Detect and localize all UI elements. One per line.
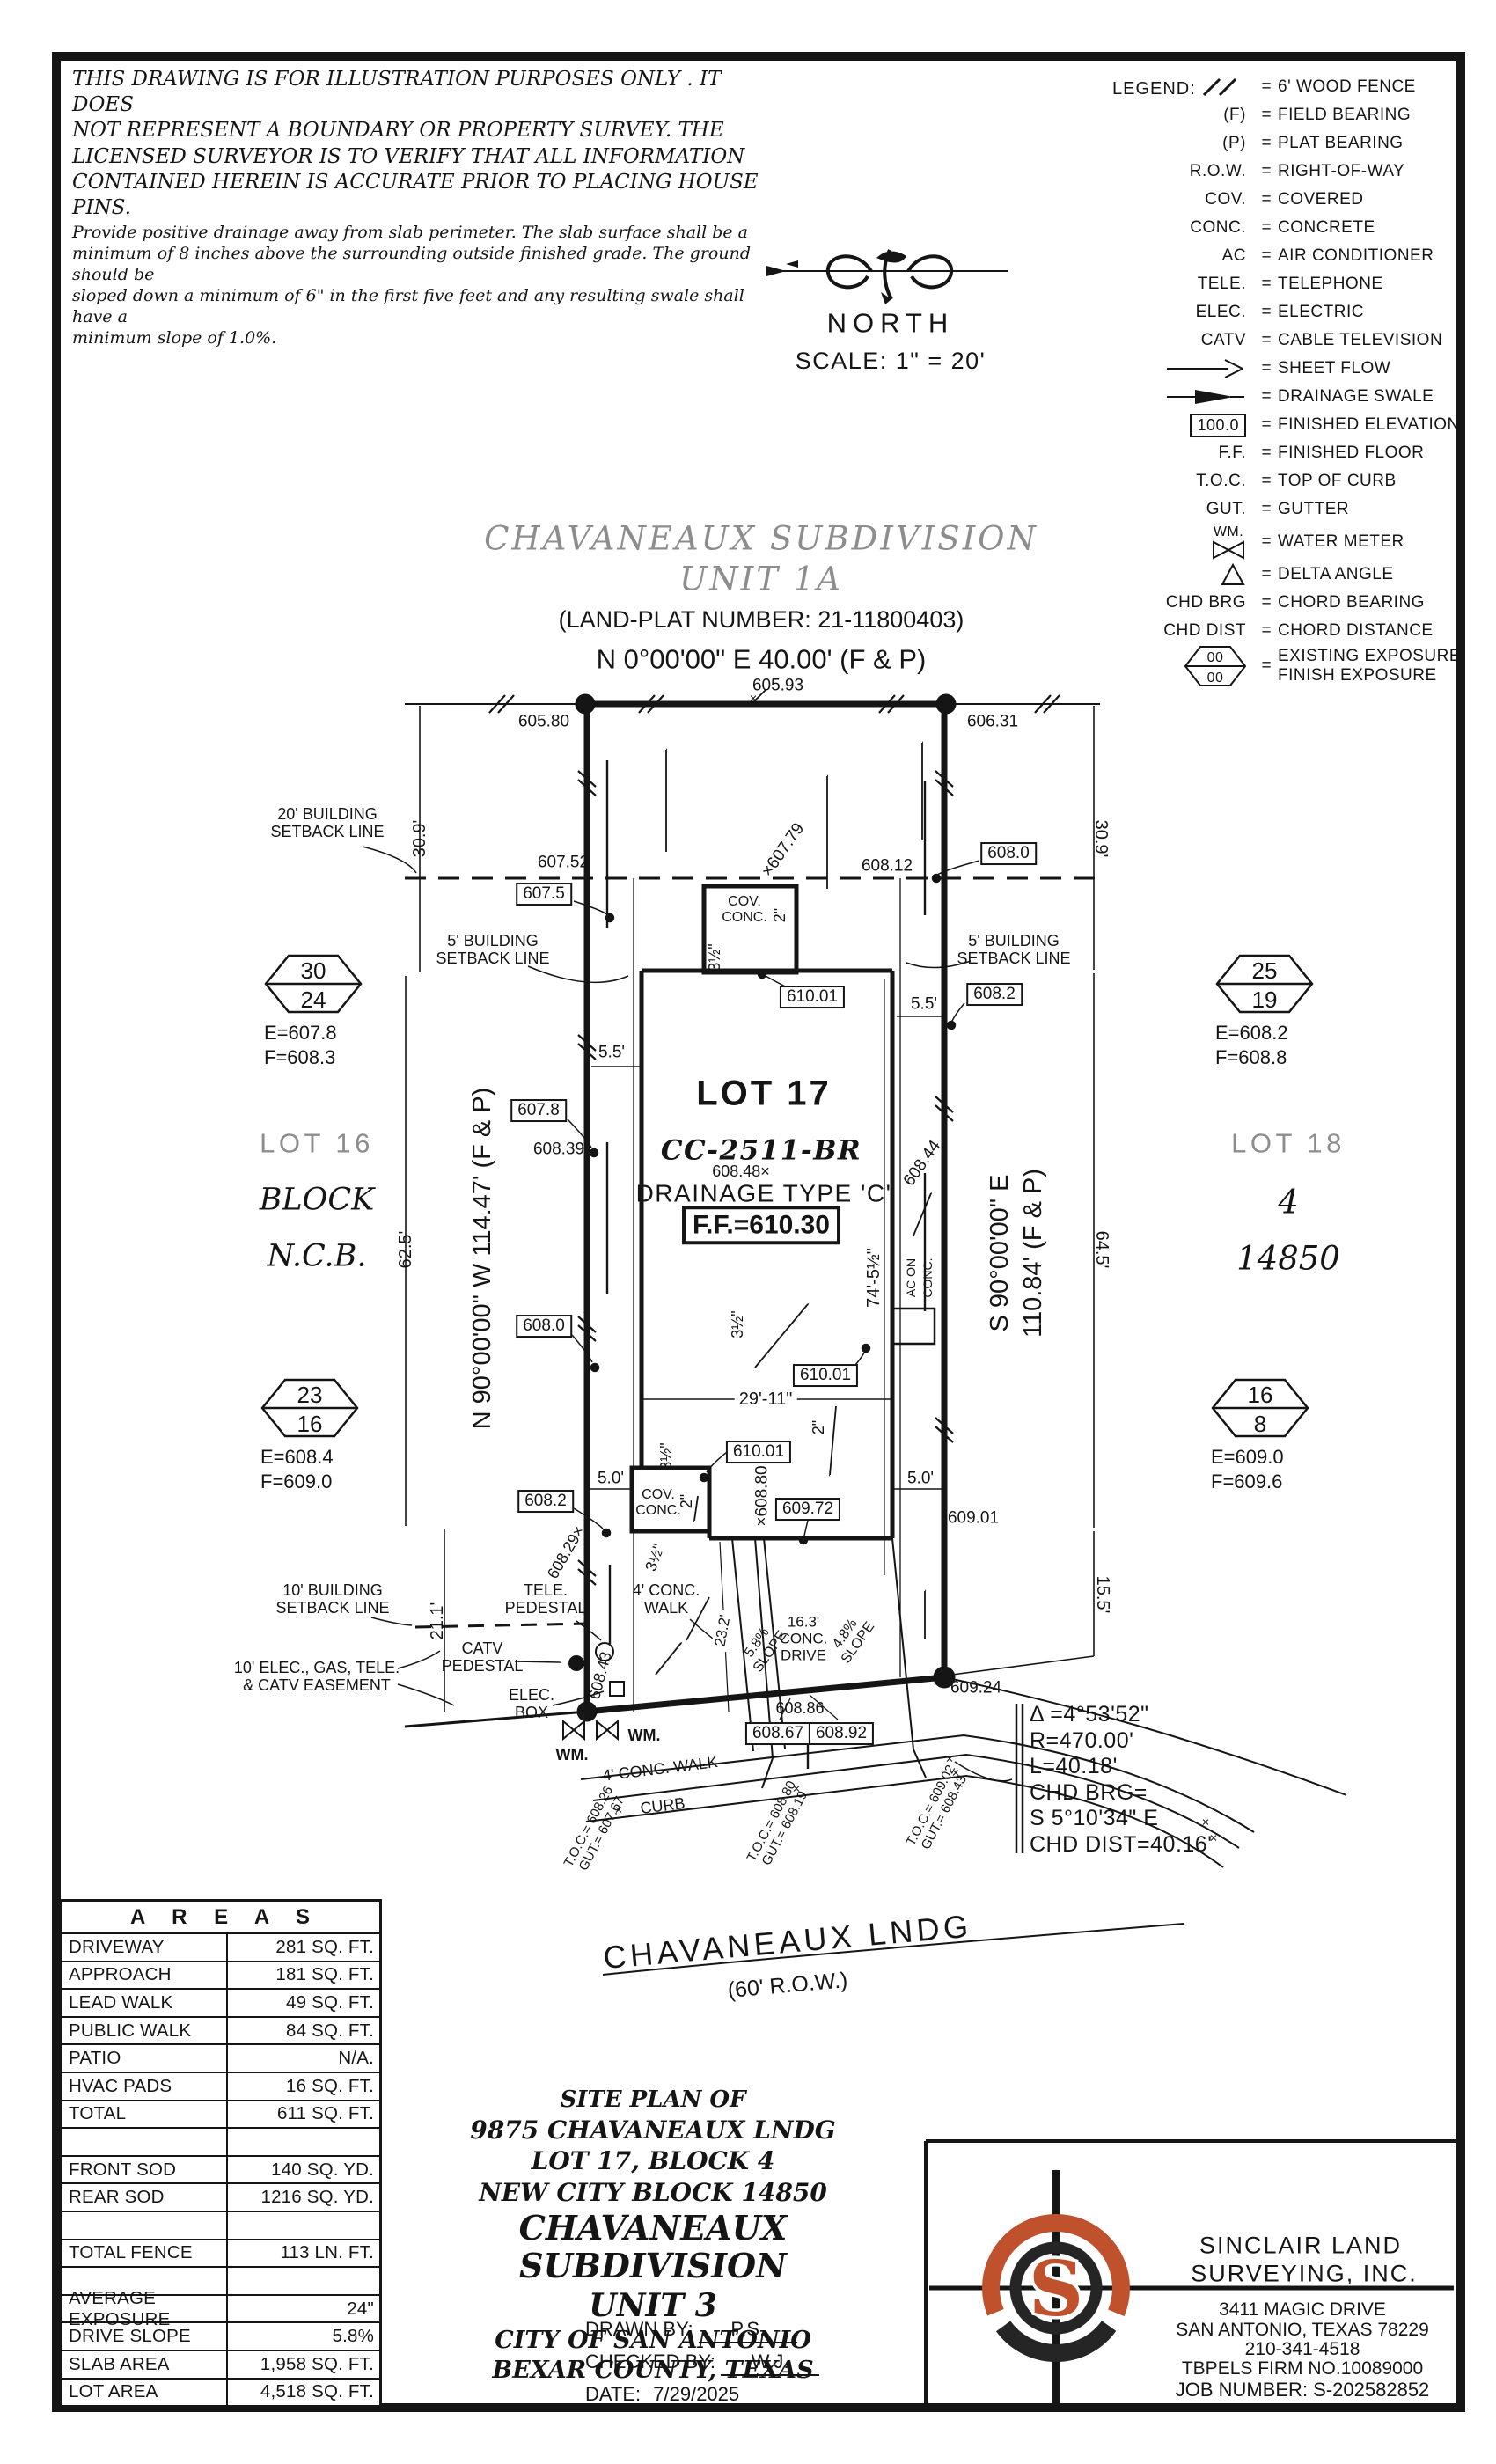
legend-equals: = — [1255, 190, 1278, 209]
plat-label: 30.9' — [410, 820, 429, 858]
plat-label: SCALE: 1" = 20' — [796, 348, 986, 374]
plat-label: ELEC. BOX — [509, 1686, 554, 1721]
plat-label: TELE. PEDESTAL — [505, 1581, 587, 1617]
legend-equals: = — [1255, 656, 1278, 676]
areas-row-value: 181 SQ. FT. — [228, 1964, 379, 1985]
areas-row-value: 24" — [228, 2299, 379, 2320]
legend-row: 100.0=FINISHED ELEVATION — [1112, 412, 1464, 438]
plat-label: F.F.=610.30 — [682, 1206, 840, 1244]
areas-row-value: 1,958 SQ. FT. — [228, 2354, 379, 2375]
plat-label: LOT 18 — [1231, 1129, 1346, 1160]
legend-row: WM.=WATER METER — [1112, 524, 1464, 560]
firm-phone: 210-341-4518 — [1245, 2339, 1360, 2360]
areas-row: APPROACH181 SQ. FT. — [62, 1962, 379, 1991]
disclaimer-main-text: THIS DRAWING IS FOR ILLUSTRATION PURPOSE… — [72, 67, 759, 221]
svg-text:00: 00 — [1207, 671, 1224, 686]
field-label: CHECKED BY: — [585, 2350, 721, 2372]
plat-label: N 90°00'00" W 114.47' (F & P) — [468, 1088, 496, 1430]
legend-label: DELTA ANGLE — [1278, 565, 1394, 584]
plat-label: 62.5' — [396, 1231, 415, 1269]
legend-row: CONC.=CONCRETE — [1112, 215, 1464, 241]
plat-label: 608.2 — [966, 983, 1023, 1006]
plat-label: 5' BUILDING SETBACK LINE — [436, 932, 549, 967]
firm-name-line1: SINCLAIR LAND — [1199, 2233, 1402, 2260]
field-label: DATE: — [585, 2383, 646, 2405]
exposure-values: E=608.4 F=609.0 — [260, 1445, 359, 1493]
plat-label: 110.84' (F & P) — [1019, 1169, 1047, 1338]
legend-equals: = — [1255, 593, 1278, 612]
areas-row: DRIVEWAY281 SQ. FT. — [62, 1934, 379, 1962]
legend-symbol-delta — [1112, 562, 1255, 587]
plat-label: 4' CONC. WALK — [633, 1581, 700, 1617]
plat-label: AC ON — [905, 1258, 919, 1297]
legend-label: AIR CONDITIONER — [1278, 246, 1434, 266]
legend-label: CONCRETE — [1278, 218, 1375, 238]
areas-row-label: AVERAGE EXPOSURE — [62, 2296, 228, 2322]
areas-row: AVERAGE EXPOSURE24" — [62, 2296, 379, 2324]
disclaimer-drainage-text: Provide positive drainage away from slab… — [72, 223, 759, 349]
legend-row: COV.=COVERED — [1112, 187, 1464, 213]
legend-title: LEGEND: — [1112, 79, 1196, 99]
plat-label: 10' BUILDING SETBACK LINE — [275, 1581, 389, 1617]
curve-data-line: Δ =4°53'52" — [1030, 1702, 1213, 1728]
plat-label: 608.2 — [517, 1490, 574, 1513]
legend-equals: = — [1255, 500, 1278, 519]
curve-data-block: Δ =4°53'52"R=470.00'L=40.18'CHD BRG=S 5°… — [1030, 1702, 1213, 1858]
legend-label: PLAT BEARING — [1278, 134, 1404, 153]
plat-label: 30.9' — [1091, 820, 1111, 858]
legend-equals: = — [1255, 415, 1278, 435]
legend-symbol-text: GUT. — [1112, 500, 1255, 519]
plat-label: 16.3' CONC. DRIVE — [780, 1613, 828, 1663]
legend-label: CHORD BEARING — [1278, 593, 1425, 612]
water-meter-icon — [597, 1721, 618, 1739]
plat-label: 610.01 — [780, 986, 845, 1008]
plat-label: WM. — [556, 1746, 589, 1764]
plat-label: 64.5' — [1092, 1231, 1111, 1269]
legend-label: RIGHT-OF-WAY — [1278, 162, 1404, 181]
legend-row: =DRAINAGE SWALE — [1112, 384, 1464, 410]
exposure-hex-marker: 3024E=607.8 F=608.3 — [264, 954, 363, 1069]
areas-row-label: DRIVE SLOPE — [62, 2323, 228, 2350]
firm-address-street: 3411 MAGIC DRIVE — [1219, 2299, 1386, 2321]
legend-symbol-text: (P) — [1112, 134, 1255, 153]
legend-equals: = — [1255, 162, 1278, 181]
plat-label: 2" — [810, 1420, 827, 1434]
plat-label: 608.48× — [712, 1162, 770, 1180]
areas-row-value: 4,518 SQ. FT. — [228, 2381, 379, 2402]
areas-row: HVAC PADS16 SQ. FT. — [62, 2073, 379, 2101]
areas-row: DRIVE SLOPE5.8% — [62, 2323, 379, 2351]
title-block-field: DRAWN BY: P.S. — [585, 2318, 819, 2343]
legend-equals: = — [1255, 134, 1278, 153]
plat-label: 605.80 — [518, 712, 569, 730]
legend-label: FINISHED ELEVATION — [1278, 415, 1460, 435]
plat-label: 607.5 — [516, 883, 572, 906]
plat-label: CHAVANEAUX SUBDIVISION — [484, 520, 1038, 556]
field-label: DRAWN BY: — [585, 2318, 699, 2340]
legend-row: (P)=PLAT BEARING — [1112, 130, 1464, 157]
legend-equals: = — [1255, 303, 1278, 322]
areas-row-label — [62, 2212, 228, 2239]
svg-text:30: 30 — [301, 957, 326, 984]
curve-data-line: CHD DIST=40.16' — [1030, 1832, 1213, 1859]
plat-label: 608.67 — [745, 1722, 810, 1745]
plat-label: 2" — [771, 908, 788, 922]
legend-row: TELE.=TELEPHONE — [1112, 271, 1464, 297]
plat-label: 610.01 — [726, 1441, 791, 1463]
legend-equals: = — [1255, 565, 1278, 584]
areas-row: PATION/A. — [62, 2045, 379, 2073]
areas-row: LEAD WALK49 SQ. FT. — [62, 1990, 379, 2018]
legend-label: DRAINAGE SWALE — [1278, 387, 1434, 407]
plat-label: 608.86 — [775, 1699, 824, 1717]
legend-row: =DELTA ANGLE — [1112, 561, 1464, 588]
areas-row-value: 49 SQ. FT. — [228, 1992, 379, 2013]
areas-table: A R E A S DRIVEWAY281 SQ. FT.APPROACH181… — [60, 1899, 382, 2408]
svg-text:19: 19 — [1252, 986, 1278, 1013]
plat-label: 607.8 — [510, 1099, 567, 1122]
plat-label: 609.01 — [948, 1508, 999, 1527]
legend-symbol-arrow-open — [1112, 359, 1255, 378]
legend-symbol-text: TELE. — [1112, 275, 1255, 294]
exposure-hex-marker: 2519E=608.2 F=608.8 — [1215, 954, 1314, 1069]
plat-label: 607.52 — [538, 853, 589, 871]
legend-row: =SHEET FLOW — [1112, 356, 1464, 382]
title-block-line: SITE PLAN OF — [380, 2087, 926, 2113]
plat-label: 29'-11" — [735, 1390, 797, 1409]
plat-label: CATV PEDESTAL — [442, 1639, 524, 1675]
exposure-hex-marker: 168E=609.0 F=609.6 — [1211, 1378, 1309, 1493]
plat-label: 3½" — [657, 1442, 675, 1470]
legend-row: AC=AIR CONDITIONER — [1112, 243, 1464, 269]
legend: LEGEND: =6' WOOD FENCE(F)=FIELD BEARING(… — [1112, 74, 1464, 688]
legend-equals: = — [1255, 621, 1278, 641]
plat-label: NORTH — [827, 309, 955, 340]
plat-label: 21.1' — [428, 1602, 447, 1640]
plat-label: 5.5' — [911, 994, 937, 1013]
areas-row-label: HVAC PADS — [62, 2073, 228, 2100]
title-block-line: 9875 CHAVANEAUX LNDG — [380, 2116, 926, 2144]
legend-equals: = — [1255, 77, 1278, 97]
legend-label: SHEET FLOW — [1278, 359, 1390, 378]
plat-label: × — [750, 693, 758, 708]
north-arrow-icon — [766, 250, 1008, 304]
plat-label: LOT 16 — [260, 1129, 374, 1160]
areas-table-rows: DRIVEWAY281 SQ. FT.APPROACH181 SQ. FT.LE… — [62, 1934, 379, 2405]
legend-equals: = — [1255, 246, 1278, 266]
curve-data-line: L=40.18' — [1030, 1754, 1213, 1780]
areas-row-label: SLAB AREA — [62, 2351, 228, 2378]
legend-row: 0000=EXISTING EXPOSURE FINISH EXPOSURE — [1112, 646, 1464, 686]
legend-row: R.O.W.=RIGHT-OF-WAY — [1112, 158, 1464, 185]
legend-rows: =6' WOOD FENCE(F)=FIELD BEARING(P)=PLAT … — [1112, 74, 1464, 686]
legend-label: COVERED — [1278, 190, 1363, 209]
areas-table-title: A R E A S — [62, 1902, 379, 1934]
curve-data-line: R=470.00' — [1030, 1728, 1213, 1755]
areas-row: TOTAL FENCE113 LN. FT. — [62, 2240, 379, 2269]
areas-row: REAR SOD1216 SQ. YD. — [62, 2184, 379, 2212]
plat-label: 609.24 — [950, 1678, 1001, 1697]
field-value: P.S. — [699, 2318, 797, 2343]
areas-row-label: TOTAL — [62, 2101, 228, 2128]
areas-row-label: TOTAL FENCE — [62, 2240, 228, 2267]
water-meter-icon — [563, 1721, 584, 1739]
areas-row-label: PATIO — [62, 2045, 228, 2072]
areas-row-label: APPROACH — [62, 1962, 228, 1989]
plat-label: × — [615, 1804, 623, 1819]
legend-symbol-text: R.O.W. — [1112, 162, 1255, 181]
areas-row-value: 16 SQ. FT. — [228, 2076, 379, 2097]
firm-address-city: SAN ANTONIO, TEXAS 78229 — [1176, 2320, 1429, 2341]
plat-label: 605.93 — [752, 676, 803, 694]
svg-text:23: 23 — [297, 1382, 323, 1408]
areas-row-value: 113 LN. FT. — [228, 2242, 379, 2263]
plat-label: N 0°00'00" E 40.00' (F & P) — [597, 645, 927, 676]
plat-label: CONC. — [921, 1258, 935, 1297]
firm-name-line2: SURVEYING, INC. — [1191, 2261, 1418, 2288]
legend-equals: = — [1255, 472, 1278, 491]
areas-row-value: 140 SQ. YD. — [228, 2160, 379, 2181]
areas-row: SLAB AREA1,958 SQ. FT. — [62, 2351, 379, 2380]
legend-equals: = — [1255, 331, 1278, 350]
curve-data-line: S 5°10'34" E — [1030, 1806, 1213, 1832]
areas-row: FRONT SOD140 SQ. YD. — [62, 2157, 379, 2185]
plat-label: 5.5' — [598, 1043, 625, 1061]
plat-label: S 90°00'00" E — [986, 1175, 1014, 1332]
areas-row-value: 281 SQ. FT. — [228, 1937, 379, 1958]
legend-row: CATV=CABLE TELEVISION — [1112, 327, 1464, 354]
legend-equals: = — [1255, 532, 1278, 552]
plat-label: DRAINAGE TYPE 'C' — [636, 1179, 892, 1206]
legend-label: CABLE TELEVISION — [1278, 331, 1442, 350]
legend-label: TOP OF CURB — [1278, 472, 1397, 491]
areas-row-value: 1216 SQ. YD. — [228, 2187, 379, 2208]
plat-label: 608.92 — [809, 1722, 874, 1745]
svg-text:24: 24 — [301, 986, 326, 1013]
plat-label: (LAND-PLAT NUMBER: 21-11800403) — [559, 606, 964, 633]
plat-label: WM. — [628, 1727, 661, 1744]
firm-tbpels-number: TBPELS FIRM NO.10089000 — [1182, 2358, 1423, 2380]
svg-text:16: 16 — [1248, 1382, 1273, 1408]
exposure-values: E=608.2 F=608.8 — [1215, 1021, 1314, 1069]
plat-label: 5.0' — [907, 1469, 934, 1487]
exposure-values: E=609.0 F=609.6 — [1211, 1445, 1309, 1493]
survey-sheet: S THIS DRAWING IS FOR ILLUSTRATION PURPO… — [0, 0, 1496, 2464]
title-block-fields: DRAWN BY: P.S.CHECKED BY: W.J.DATE: 7/29… — [585, 2318, 819, 2416]
legend-row: CHD DIST=CHORD DISTANCE — [1112, 618, 1464, 644]
areas-row: PUBLIC WALK84 SQ. FT. — [62, 2018, 379, 2046]
legend-label: GUTTER — [1278, 500, 1349, 519]
legend-symbol-text: CONC. — [1112, 218, 1255, 238]
svg-text:8: 8 — [1254, 1411, 1266, 1437]
legend-row: T.O.C.=TOP OF CURB — [1112, 468, 1464, 495]
svg-text:16: 16 — [297, 1411, 323, 1437]
areas-row-label: DRIVEWAY — [62, 1934, 228, 1961]
legend-equals: = — [1255, 106, 1278, 125]
plat-label: 15.5' — [1093, 1576, 1112, 1614]
legend-label: EXISTING EXPOSURE FINISH EXPOSURE — [1278, 647, 1461, 686]
title-block-field: DATE: 7/29/2025 — [585, 2383, 819, 2409]
title-block-field: CHECKED BY: W.J. — [585, 2350, 819, 2376]
curve-bracket — [1016, 1704, 1023, 1853]
legend-symbol-text: T.O.C. — [1112, 472, 1255, 491]
legend-symbol-elev-box: 100.0 — [1112, 414, 1255, 437]
areas-row-label: LEAD WALK — [62, 1990, 228, 2016]
title-block-line: CHAVANEAUX SUBDIVISION — [380, 2210, 926, 2284]
plat-label: COV. CONC. — [635, 1487, 681, 1519]
firm-job-number: JOB NUMBER: S-202582852 — [1176, 2379, 1430, 2402]
plat-label: 608.0 — [980, 842, 1037, 865]
title-block-line: NEW CITY BLOCK 14850 — [380, 2179, 926, 2206]
plat-label: 4 — [1278, 1184, 1299, 1220]
legend-symbol-text: CHD DIST — [1112, 621, 1255, 641]
plat-label: 20' BUILDING SETBACK LINE — [270, 805, 384, 840]
areas-row-label: PUBLIC WALK — [62, 2018, 228, 2044]
plat-label: 3½" — [729, 1310, 746, 1338]
title-block-line: LOT 17, BLOCK 4 — [380, 2147, 926, 2174]
plat-label: × — [793, 1783, 801, 1798]
areas-row-label: LOT AREA — [62, 2380, 228, 2406]
plat-label: 74'-5½" — [864, 1243, 884, 1312]
legend-symbol-text: CHD BRG — [1112, 593, 1255, 612]
plat-label: 10' ELEC., GAS, TELE. & CATV EASEMENT — [234, 1659, 400, 1694]
plat-label: 608.39 — [533, 1140, 584, 1158]
legend-symbol-text: CATV — [1112, 331, 1255, 350]
plat-label: 5' BUILDING SETBACK LINE — [957, 932, 1070, 967]
legend-symbol-text: AC — [1112, 246, 1255, 266]
legend-equals: = — [1255, 359, 1278, 378]
legend-equals: = — [1255, 218, 1278, 238]
field-value: W.J. — [721, 2350, 819, 2376]
areas-row-label: FRONT SOD — [62, 2157, 228, 2183]
plat-label: 14850 — [1236, 1240, 1340, 1276]
legend-row: CHD BRG=CHORD BEARING — [1112, 590, 1464, 616]
legend-row: (F)=FIELD BEARING — [1112, 102, 1464, 128]
plat-label: 2" — [678, 1494, 695, 1508]
plat-label: 606.31 — [967, 712, 1018, 730]
areas-row-value: 611 SQ. FT. — [228, 2103, 379, 2124]
exposure-hex-marker: 2316E=608.4 F=609.0 — [260, 1378, 359, 1493]
legend-equals: = — [1255, 275, 1278, 294]
plat-label: 3½" — [706, 943, 723, 971]
legend-label: ELECTRIC — [1278, 303, 1364, 322]
legend-symbol-text: (F) — [1112, 106, 1255, 125]
legend-symbol-text: ELEC. — [1112, 303, 1255, 322]
catv-pedestal-icon — [569, 1656, 583, 1670]
plat-label: UNIT 1A — [679, 561, 843, 597]
areas-row — [62, 2212, 379, 2240]
legend-symbol-arrow-solid — [1112, 387, 1255, 407]
legend-row: F.F.=FINISHED FLOOR — [1112, 440, 1464, 466]
areas-row: LOT AREA4,518 SQ. FT. — [62, 2380, 379, 2406]
legend-row: ELEC.=ELECTRIC — [1112, 299, 1464, 326]
legend-label: FIELD BEARING — [1278, 106, 1411, 125]
areas-row — [62, 2129, 379, 2157]
plat-label: × — [952, 1767, 960, 1782]
plat-label: ×608.80 — [752, 1465, 771, 1526]
plat-label: 610.01 — [793, 1364, 858, 1387]
legend-label: FINISHED FLOOR — [1278, 444, 1424, 463]
legend-symbol-text: F.F. — [1112, 444, 1255, 463]
plat-label: 5.0' — [598, 1469, 624, 1487]
legend-row: GUT.=GUTTER — [1112, 496, 1464, 523]
svg-text:00: 00 — [1207, 650, 1224, 665]
plat-label: COV. CONC. — [722, 894, 767, 926]
areas-row-label — [62, 2129, 228, 2155]
curve-data-line: CHD BRG= — [1030, 1780, 1213, 1807]
plat-label: 608.0 — [516, 1315, 572, 1338]
legend-symbol-text: COV. — [1112, 190, 1255, 209]
logo-letter: S — [1029, 2245, 1083, 2334]
plat-label: 609.72 — [775, 1498, 840, 1521]
areas-row-value: 5.8% — [228, 2326, 379, 2347]
legend-equals: = — [1255, 444, 1278, 463]
areas-row-value: 84 SQ. FT. — [228, 2020, 379, 2042]
legend-label: 6' WOOD FENCE — [1278, 77, 1416, 97]
plat-label: 608.12 — [862, 856, 913, 875]
legend-symbol-wm: WM. — [1112, 524, 1255, 560]
svg-text:25: 25 — [1252, 957, 1278, 984]
elec-box-icon — [610, 1682, 624, 1696]
disclaimer-note: THIS DRAWING IS FOR ILLUSTRATION PURPOSE… — [72, 67, 759, 349]
plat-label: N.C.B. — [267, 1239, 366, 1273]
legend-label: CHORD DISTANCE — [1278, 621, 1434, 641]
areas-row-value: N/A. — [228, 2048, 379, 2069]
exposure-values: E=607.8 F=608.3 — [264, 1021, 363, 1069]
areas-row-label: REAR SOD — [62, 2184, 228, 2211]
legend-symbol-hex: 0000 — [1112, 646, 1255, 686]
legend-label: WATER METER — [1278, 532, 1404, 552]
legend-equals: = — [1255, 387, 1278, 407]
plat-label: BLOCK — [260, 1183, 375, 1217]
legend-label: TELEPHONE — [1278, 275, 1383, 294]
plat-label: LOT 17 — [696, 1074, 832, 1114]
areas-row: TOTAL611 SQ. FT. — [62, 2101, 379, 2130]
field-value: 7/29/2025 — [646, 2383, 746, 2409]
